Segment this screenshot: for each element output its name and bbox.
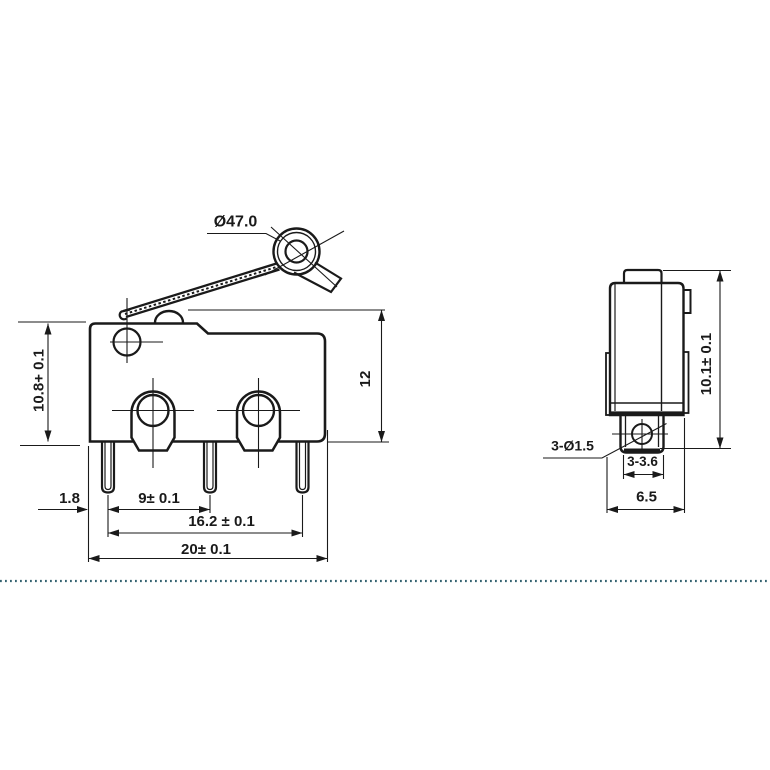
dimension-label-pin-pitch-1: 9± 0.1 [138, 490, 180, 507]
roller-bracket [294, 263, 341, 293]
dimension-body-height: 10.8+ 0.1 [18, 322, 86, 446]
drawing-sheet: Ø47.0 [0, 0, 770, 770]
dimension-terminal-width: 3-3.6 [624, 454, 664, 479]
side-view: 3-Ø1.5 3-3.6 6.5 10.1± 0.1 [543, 270, 731, 513]
mounting-boss-right [217, 378, 300, 468]
roller-diameter-dimension: Ø47.0 [207, 214, 281, 242]
switch-body [90, 324, 325, 442]
dimension-label-side-height: 10.1± 0.1 [698, 333, 715, 395]
dimension-overall-height: 12 [188, 310, 389, 442]
terminal-pin [297, 442, 309, 493]
side-rib-right [684, 352, 689, 413]
dimension-label-terminal-width: 3-3.6 [627, 454, 658, 469]
dimension-pin-pitch-2: 16.2 ± 0.1 [108, 513, 303, 537]
terminal-pin [204, 442, 216, 493]
terminal-pins [102, 442, 309, 493]
microswitch-technical-drawing: Ø47.0 [0, 0, 770, 770]
dimension-side-height: 10.1± 0.1 [660, 271, 731, 449]
plunger-button [155, 311, 183, 323]
dimension-pin-edge-offset: 1.8 [38, 490, 88, 513]
dimension-label-pin-edge-offset: 1.8 [59, 490, 80, 507]
side-rib-left [606, 353, 610, 415]
side-terminal-tab [612, 415, 668, 453]
dimension-label-pin-pitch-2: 16.2 ± 0.1 [188, 513, 255, 530]
side-plunger-button [624, 270, 662, 283]
dimension-label-overall-height: 12 [357, 371, 374, 388]
terminal-pin [102, 442, 114, 493]
side-body [610, 283, 684, 415]
dimension-body-width: 20± 0.1 [89, 541, 328, 562]
dimension-label-body-depth: 6.5 [636, 489, 657, 506]
lever-pivot-hook [120, 310, 130, 320]
leader-line [207, 234, 281, 242]
dimension-label-roller-diameter: Ø47.0 [214, 214, 258, 231]
mounting-boss-left [112, 378, 194, 468]
front-view: Ø47.0 [18, 214, 389, 563]
dimension-label-body-width: 20± 0.1 [181, 541, 231, 558]
dimension-pin-pitch-1: 9± 0.1 [108, 490, 210, 513]
dimension-label-terminal-holes: 3-Ø1.5 [551, 438, 594, 454]
dimension-label-body-height: 10.8+ 0.1 [31, 349, 48, 412]
